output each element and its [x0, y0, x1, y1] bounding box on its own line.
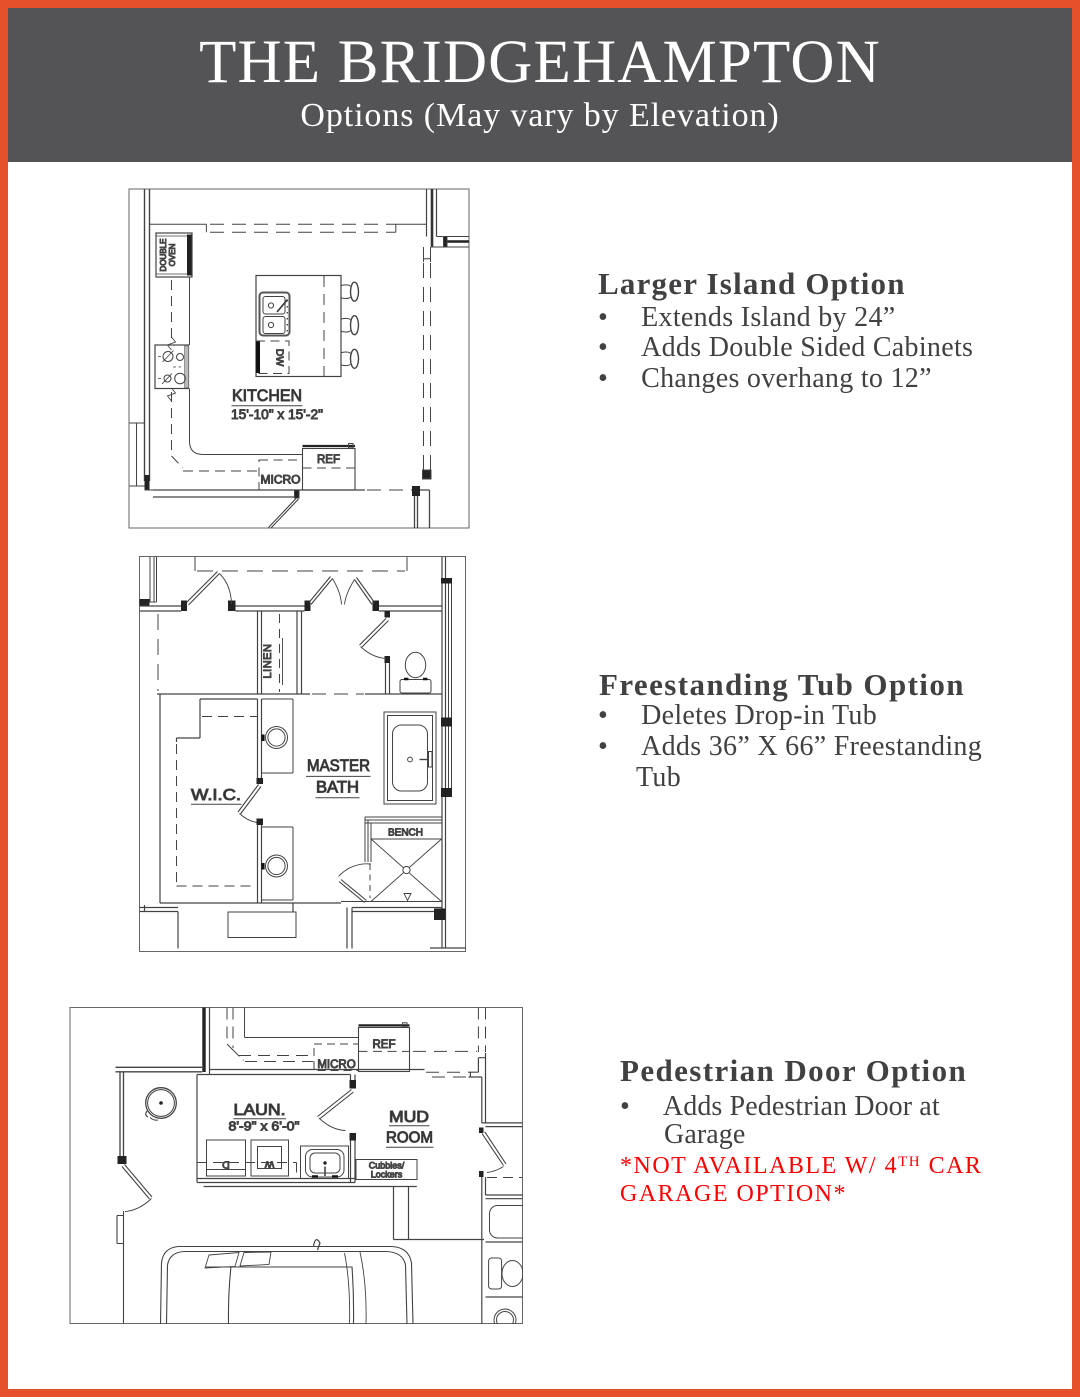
- svg-text:REF: REF: [317, 454, 340, 466]
- svg-text:8'-9" x 6'-0": 8'-9" x 6'-0": [229, 1119, 300, 1134]
- svg-text:REF: REF: [373, 1039, 396, 1051]
- svg-text:LINEN: LINEN: [262, 644, 274, 679]
- svg-text:MICRO: MICRO: [261, 475, 301, 487]
- svg-text:BENCH: BENCH: [388, 828, 423, 839]
- svg-text:15'-10" x 15'-2": 15'-10" x 15'-2": [231, 406, 323, 422]
- svg-text:W: W: [264, 1159, 274, 1171]
- svg-text:D: D: [222, 1159, 230, 1171]
- svg-text:MASTER: MASTER: [307, 757, 370, 775]
- svg-text:DW: DW: [274, 349, 286, 367]
- svg-text:BATH: BATH: [316, 779, 359, 797]
- svg-text:OVEN: OVEN: [168, 243, 177, 266]
- svg-text:W.I.C.: W.I.C.: [191, 787, 241, 804]
- svg-text:MUD: MUD: [389, 1109, 429, 1126]
- svg-text:LAUN.: LAUN.: [234, 1102, 286, 1119]
- svg-text:ROOM: ROOM: [386, 1130, 433, 1147]
- svg-text:Lockers: Lockers: [371, 1170, 403, 1180]
- svg-text:DOUBLE: DOUBLE: [159, 239, 168, 272]
- svg-text:KITCHEN: KITCHEN: [232, 386, 302, 405]
